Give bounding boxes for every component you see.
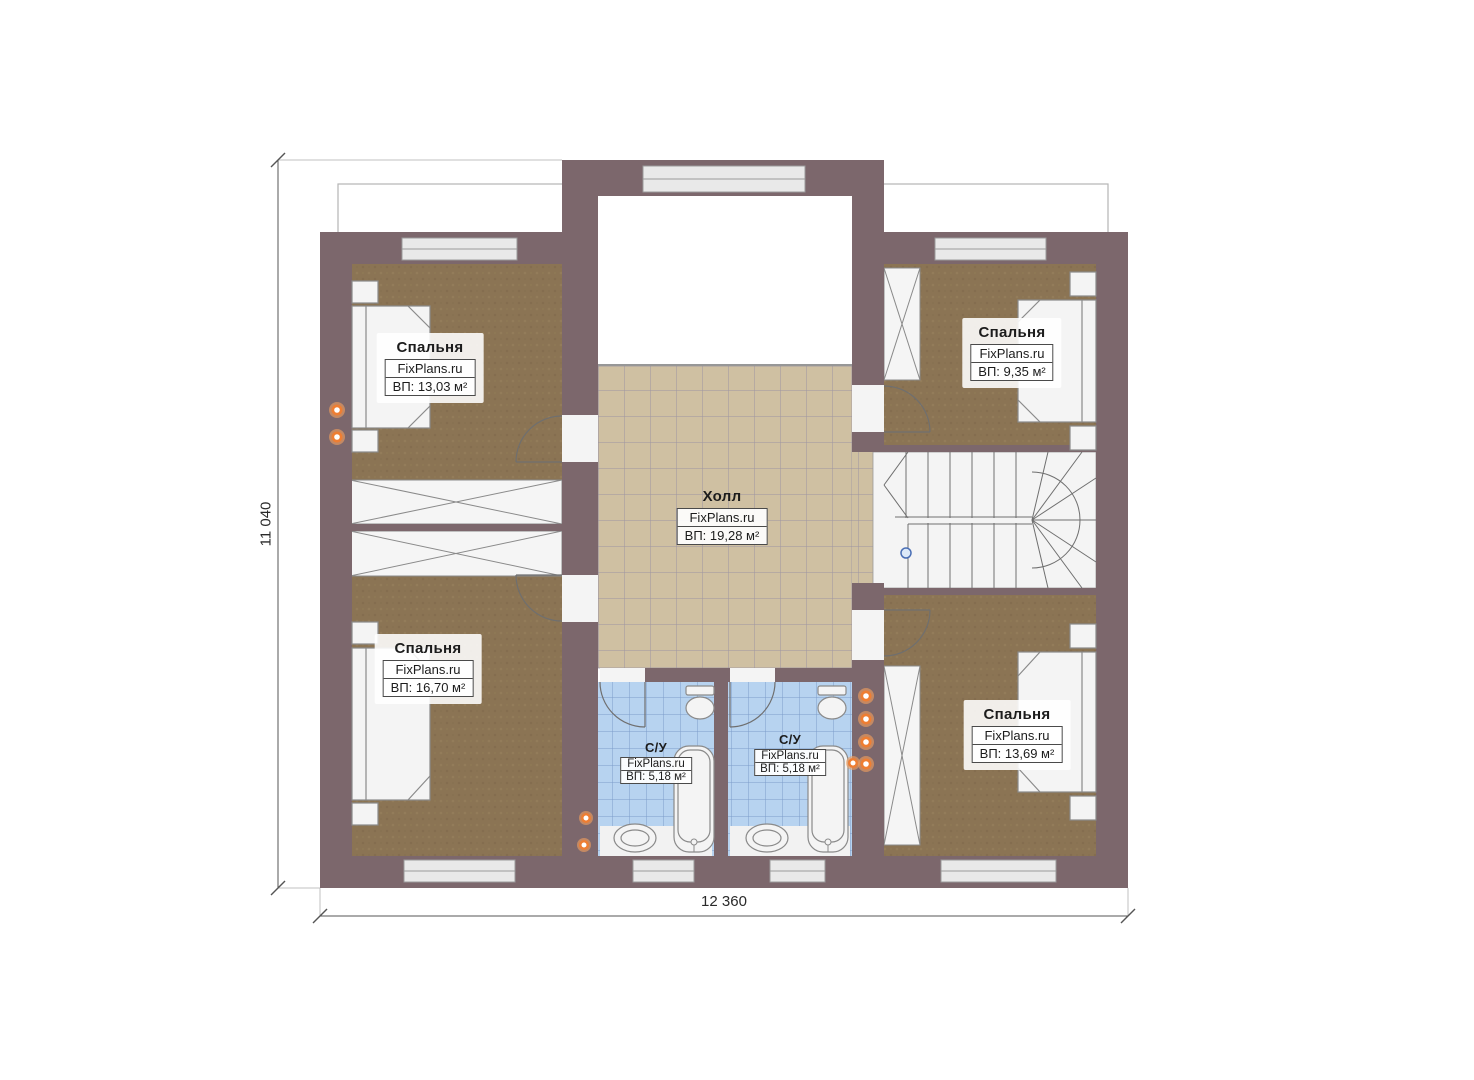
heat-dot xyxy=(579,811,593,825)
room-area: ВП: 19,28 м² xyxy=(678,526,767,544)
dimension-height-label: 11 040 xyxy=(258,502,275,547)
room-info-box: FixPlans.ru ВП: 9,35 м² xyxy=(970,344,1053,381)
room-brand: FixPlans.ru xyxy=(678,509,767,526)
door-opening xyxy=(600,668,645,682)
wall-segment xyxy=(562,462,598,575)
wall-segment xyxy=(852,432,884,452)
room-brand: FixPlans.ru xyxy=(621,758,691,770)
room-area: ВП: 13,03 м² xyxy=(386,377,475,395)
room-name: Холл xyxy=(677,488,768,505)
room-label-bedroom-top-right: Спальня FixPlans.ru ВП: 9,35 м² xyxy=(962,318,1061,388)
wall-segment xyxy=(320,232,352,888)
room-label-bedroom-top-left: Спальня FixPlans.ru ВП: 13,03 м² xyxy=(377,333,484,403)
room-brand: FixPlans.ru xyxy=(384,661,473,678)
nightstand xyxy=(1070,272,1096,296)
wall-segment xyxy=(884,588,1096,595)
sink xyxy=(746,824,788,852)
room-info-box: FixPlans.ru ВП: 13,69 м² xyxy=(972,726,1063,763)
room-brand: FixPlans.ru xyxy=(973,727,1062,744)
heat-dot xyxy=(846,756,860,770)
wall-segment xyxy=(714,668,728,856)
room-area: ВП: 9,35 м² xyxy=(971,362,1052,380)
room-name: С/У xyxy=(754,732,826,747)
toilet xyxy=(818,697,846,719)
room-label-bedroom-bottom-right: Спальня FixPlans.ru ВП: 13,69 м² xyxy=(964,700,1071,770)
room-label-bathroom-1: С/У FixPlans.ru ВП: 5,18 м² xyxy=(620,740,692,785)
stair-landing-tiles xyxy=(852,452,873,588)
wall-segment xyxy=(562,264,598,415)
room-info-box: FixPlans.ru ВП: 19,28 м² xyxy=(677,508,768,545)
room-name: С/У xyxy=(620,740,692,755)
heat-dot xyxy=(329,429,345,445)
heat-dot xyxy=(577,838,591,852)
heat-dot xyxy=(858,711,874,727)
room-area: ВП: 16,70 м² xyxy=(384,678,473,696)
door-opening xyxy=(562,575,598,622)
room-label-hall: Холл FixPlans.ru ВП: 19,28 м² xyxy=(677,488,768,545)
nightstand xyxy=(352,803,378,825)
door-opening xyxy=(852,385,884,432)
wall-segment xyxy=(562,160,598,266)
wall-segment xyxy=(884,445,1096,452)
room-area: ВП: 5,18 м² xyxy=(621,770,691,783)
room-brand: FixPlans.ru xyxy=(755,750,825,762)
room-name: Спальня xyxy=(385,339,476,356)
nightstand xyxy=(1070,796,1096,820)
nightstand xyxy=(1070,624,1096,648)
room-name: Спальня xyxy=(383,640,474,657)
room-name: Спальня xyxy=(970,324,1053,341)
room-info-box: FixPlans.ru ВП: 5,18 м² xyxy=(620,757,692,784)
room-name: Спальня xyxy=(972,706,1063,723)
wall-segment xyxy=(1096,232,1128,888)
tub-faucet xyxy=(825,839,831,845)
nightstand xyxy=(352,281,378,303)
toilet-tank xyxy=(818,686,846,695)
room-area: ВП: 13,69 м² xyxy=(973,744,1062,762)
void-open-below xyxy=(598,196,852,366)
room-brand: FixPlans.ru xyxy=(386,360,475,377)
wall-segment xyxy=(852,583,884,610)
door-opening xyxy=(852,610,884,660)
room-brand: FixPlans.ru xyxy=(971,345,1052,362)
wall-segment xyxy=(852,196,884,385)
nightstand xyxy=(352,430,378,452)
stair-level-marker xyxy=(901,548,911,558)
heat-dot xyxy=(858,734,874,750)
heat-dot xyxy=(858,756,874,772)
heat-dot xyxy=(329,402,345,418)
wall-segment xyxy=(350,524,562,531)
room-info-box: FixPlans.ru ВП: 13,03 м² xyxy=(385,359,476,396)
room-info-box: FixPlans.ru ВП: 16,70 м² xyxy=(383,660,474,697)
toilet-tank xyxy=(686,686,714,695)
room-label-bedroom-bottom-left: Спальня FixPlans.ru ВП: 16,70 м² xyxy=(375,634,482,704)
dimension-width-label: 12 360 xyxy=(701,893,747,910)
floor-plan-canvas: Спальня FixPlans.ru ВП: 13,03 м² Спальня… xyxy=(0,0,1474,1080)
door-opening xyxy=(730,668,775,682)
toilet xyxy=(686,697,714,719)
nightstand xyxy=(1070,426,1096,450)
tub-faucet xyxy=(691,839,697,845)
sink xyxy=(614,824,656,852)
door-opening xyxy=(562,415,598,462)
wall-segment xyxy=(775,668,852,682)
room-info-box: FixPlans.ru ВП: 5,18 м² xyxy=(754,749,826,776)
heat-dot xyxy=(858,688,874,704)
room-area: ВП: 5,18 м² xyxy=(755,762,825,775)
room-label-bathroom-2: С/У FixPlans.ru ВП: 5,18 м² xyxy=(754,732,826,777)
